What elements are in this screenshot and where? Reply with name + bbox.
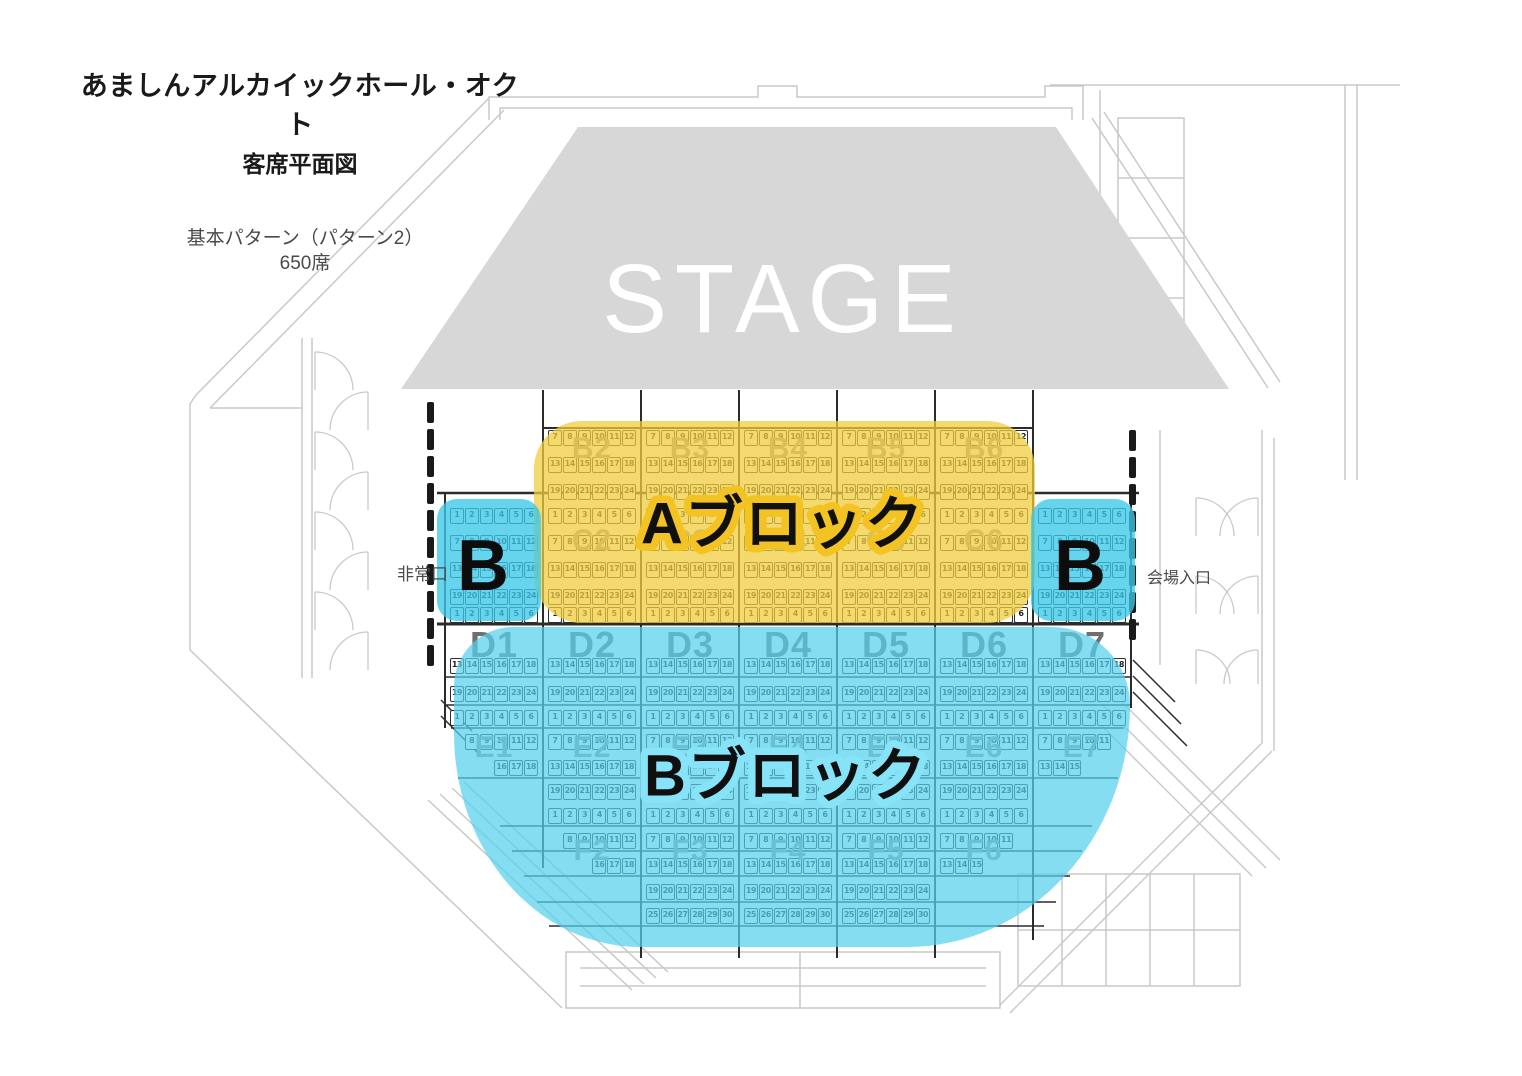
b-side-left-label: B [457,526,509,606]
floor-plan-canvas: STAGE [0,0,1522,1076]
a-block-label: Aブロック [641,492,925,557]
hall-name: あましんアルカイックホール・オクト [70,64,530,142]
b-block-label: Bブロック [644,744,928,809]
pattern-note-line1: 基本パターン（パターン2） [155,226,455,251]
pattern-note: 基本パターン（パターン2） 650席 [155,226,455,276]
b-side-right-label: B [1054,526,1106,606]
plan-subtitle: 客席平面図 [70,145,530,179]
pattern-note-line2: 650席 [155,251,455,276]
emergency-exit-label: 非常口 [372,560,448,585]
page-title: あましんアルカイックホール・オクト 客席平面図 [70,64,530,179]
venue-entrance-label: 会場入口 [1147,564,1211,588]
